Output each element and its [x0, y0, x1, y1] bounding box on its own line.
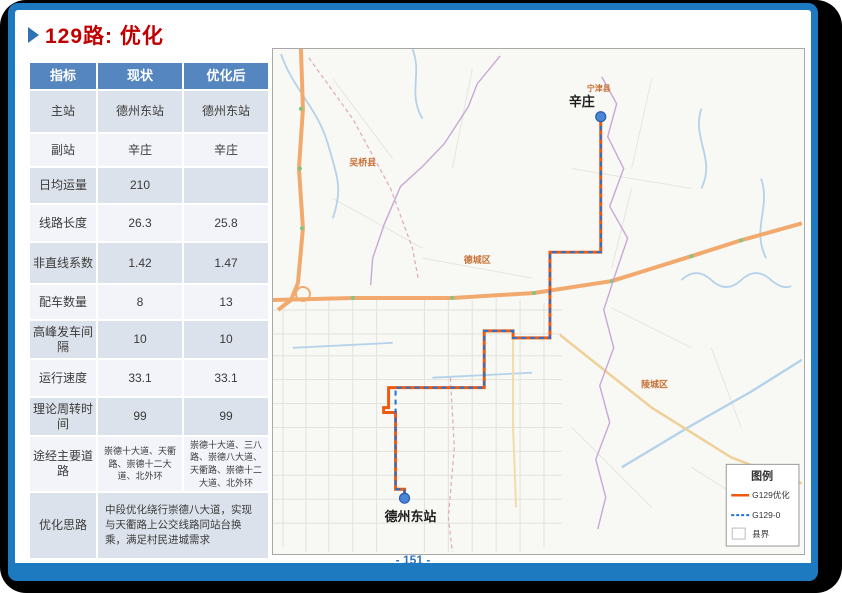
optimized-value: 1.47 — [184, 243, 268, 283]
table-row: 非直线系数1.421.47 — [30, 243, 268, 283]
table-row: 理论周转时间9999 — [30, 398, 268, 435]
table-row: 运行速度33.133.1 — [30, 360, 268, 396]
optimized-value: 10 — [184, 321, 268, 358]
optimized-value: 13 — [184, 285, 268, 319]
table-row: 途经主要道路崇德十大道、天衢路、崇德十二大道、北外环崇德十大道、三八路、崇德八大… — [30, 437, 268, 491]
optimized-value: 99 — [184, 398, 268, 435]
row-label: 运行速度 — [30, 360, 96, 396]
metrics-table: 指标现状优化后主站德州东站德州东站副站辛庄辛庄日均运量210线路长度26.325… — [30, 63, 268, 560]
slide-frame: 129路: 优化 指标现状优化后主站德州东站德州东站副站辛庄辛庄日均运量210线… — [8, 3, 818, 581]
table-row: 高峰发车间隔1010 — [30, 321, 268, 358]
current-value: 26.3 — [98, 205, 182, 241]
table-header-row: 指标现状优化后 — [30, 63, 268, 89]
station-label-xinzhuang: 辛庄 — [569, 94, 595, 109]
slide-page: { "slide": { "title": "129路: 优化", "page_… — [0, 0, 842, 593]
optimized-value: 25.8 — [184, 205, 268, 241]
row-label: 配车数量 — [30, 285, 96, 319]
current-value: 辛庄 — [98, 134, 182, 166]
page-title: 129路: 优化 — [45, 20, 164, 50]
row-label: 高峰发车间隔 — [30, 321, 96, 358]
region-label-wuqiao: 吴桥县 — [349, 157, 376, 168]
row-label: 优化思路 — [30, 493, 96, 558]
legend-item-county: 县界 — [752, 529, 769, 539]
legend-item-original: G129-0 — [752, 510, 780, 520]
current-value: 崇德十大道、天衢路、崇德十二大道、北外环 — [98, 437, 182, 491]
optimized-value: 崇德十大道、三八路、崇德八大道、天衢路、崇德十二大道、北外环 — [184, 437, 268, 491]
title-arrow-icon — [28, 27, 39, 43]
current-value: 1.42 — [98, 243, 182, 283]
table-row: 配车数量813 — [30, 285, 268, 319]
legend-county-box-icon — [732, 528, 745, 539]
current-value: 8 — [98, 285, 182, 319]
header-cell: 优化后 — [184, 63, 268, 89]
row-label: 非直线系数 — [30, 243, 96, 283]
table-row: 线路长度26.325.8 — [30, 205, 268, 241]
row-label: 副站 — [30, 134, 96, 166]
optimized-value: 德州东站 — [184, 91, 268, 132]
header-cell: 指标 — [30, 63, 96, 89]
row-label: 主站 — [30, 91, 96, 132]
station-dot-dezhou-east — [400, 493, 410, 503]
title-row: 129路: 优化 — [28, 20, 164, 50]
table-row: 优化思路中段优化绕行崇德八大道，实现与天衢路上公交线路同站台换乘，满足村民进城需… — [30, 493, 268, 558]
header-cell: 现状 — [98, 63, 182, 89]
optimized-value — [184, 168, 268, 203]
current-value: 99 — [98, 398, 182, 435]
row-label: 理论周转时间 — [30, 398, 96, 435]
station-label-dezhou-east: 德州东站 — [385, 509, 437, 524]
current-value: 德州东站 — [98, 91, 182, 132]
row-label: 途经主要道路 — [30, 437, 96, 491]
legend-title: 图例 — [751, 468, 773, 482]
current-value: 210 — [98, 168, 182, 203]
route-map-canvas: 宁津县 吴桥县 德城区 陵城区 辛庄 德州东站 图例 G129优化 G129-0… — [273, 49, 802, 552]
region-label-lingcheng: 陵城区 — [641, 379, 668, 390]
table-row: 副站辛庄辛庄 — [30, 134, 268, 166]
row-label: 线路长度 — [30, 205, 96, 241]
optimized-value: 辛庄 — [184, 134, 268, 166]
row-label: 日均运量 — [30, 168, 96, 203]
route-map: 宁津县 吴桥县 德城区 陵城区 辛庄 德州东站 图例 G129优化 G129-0… — [272, 48, 805, 555]
current-value: 10 — [98, 321, 182, 358]
optimized-value: 33.1 — [184, 360, 268, 396]
region-label-decheng: 德城区 — [464, 254, 491, 265]
station-dot-xinzhuang — [596, 112, 606, 122]
merged-value: 中段优化绕行崇德八大道，实现与天衢路上公交线路同站台换乘，满足村民进城需求 — [98, 493, 268, 558]
map-legend: 图例 G129优化 G129-0 县界 — [726, 464, 799, 546]
bottom-accent-bar — [8, 563, 818, 581]
region-label-ningjin: 宁津县 — [587, 83, 611, 93]
table-row: 日均运量210 — [30, 168, 268, 203]
current-value: 33.1 — [98, 360, 182, 396]
table-row: 主站德州东站德州东站 — [30, 91, 268, 132]
legend-item-optimized: G129优化 — [752, 490, 790, 500]
